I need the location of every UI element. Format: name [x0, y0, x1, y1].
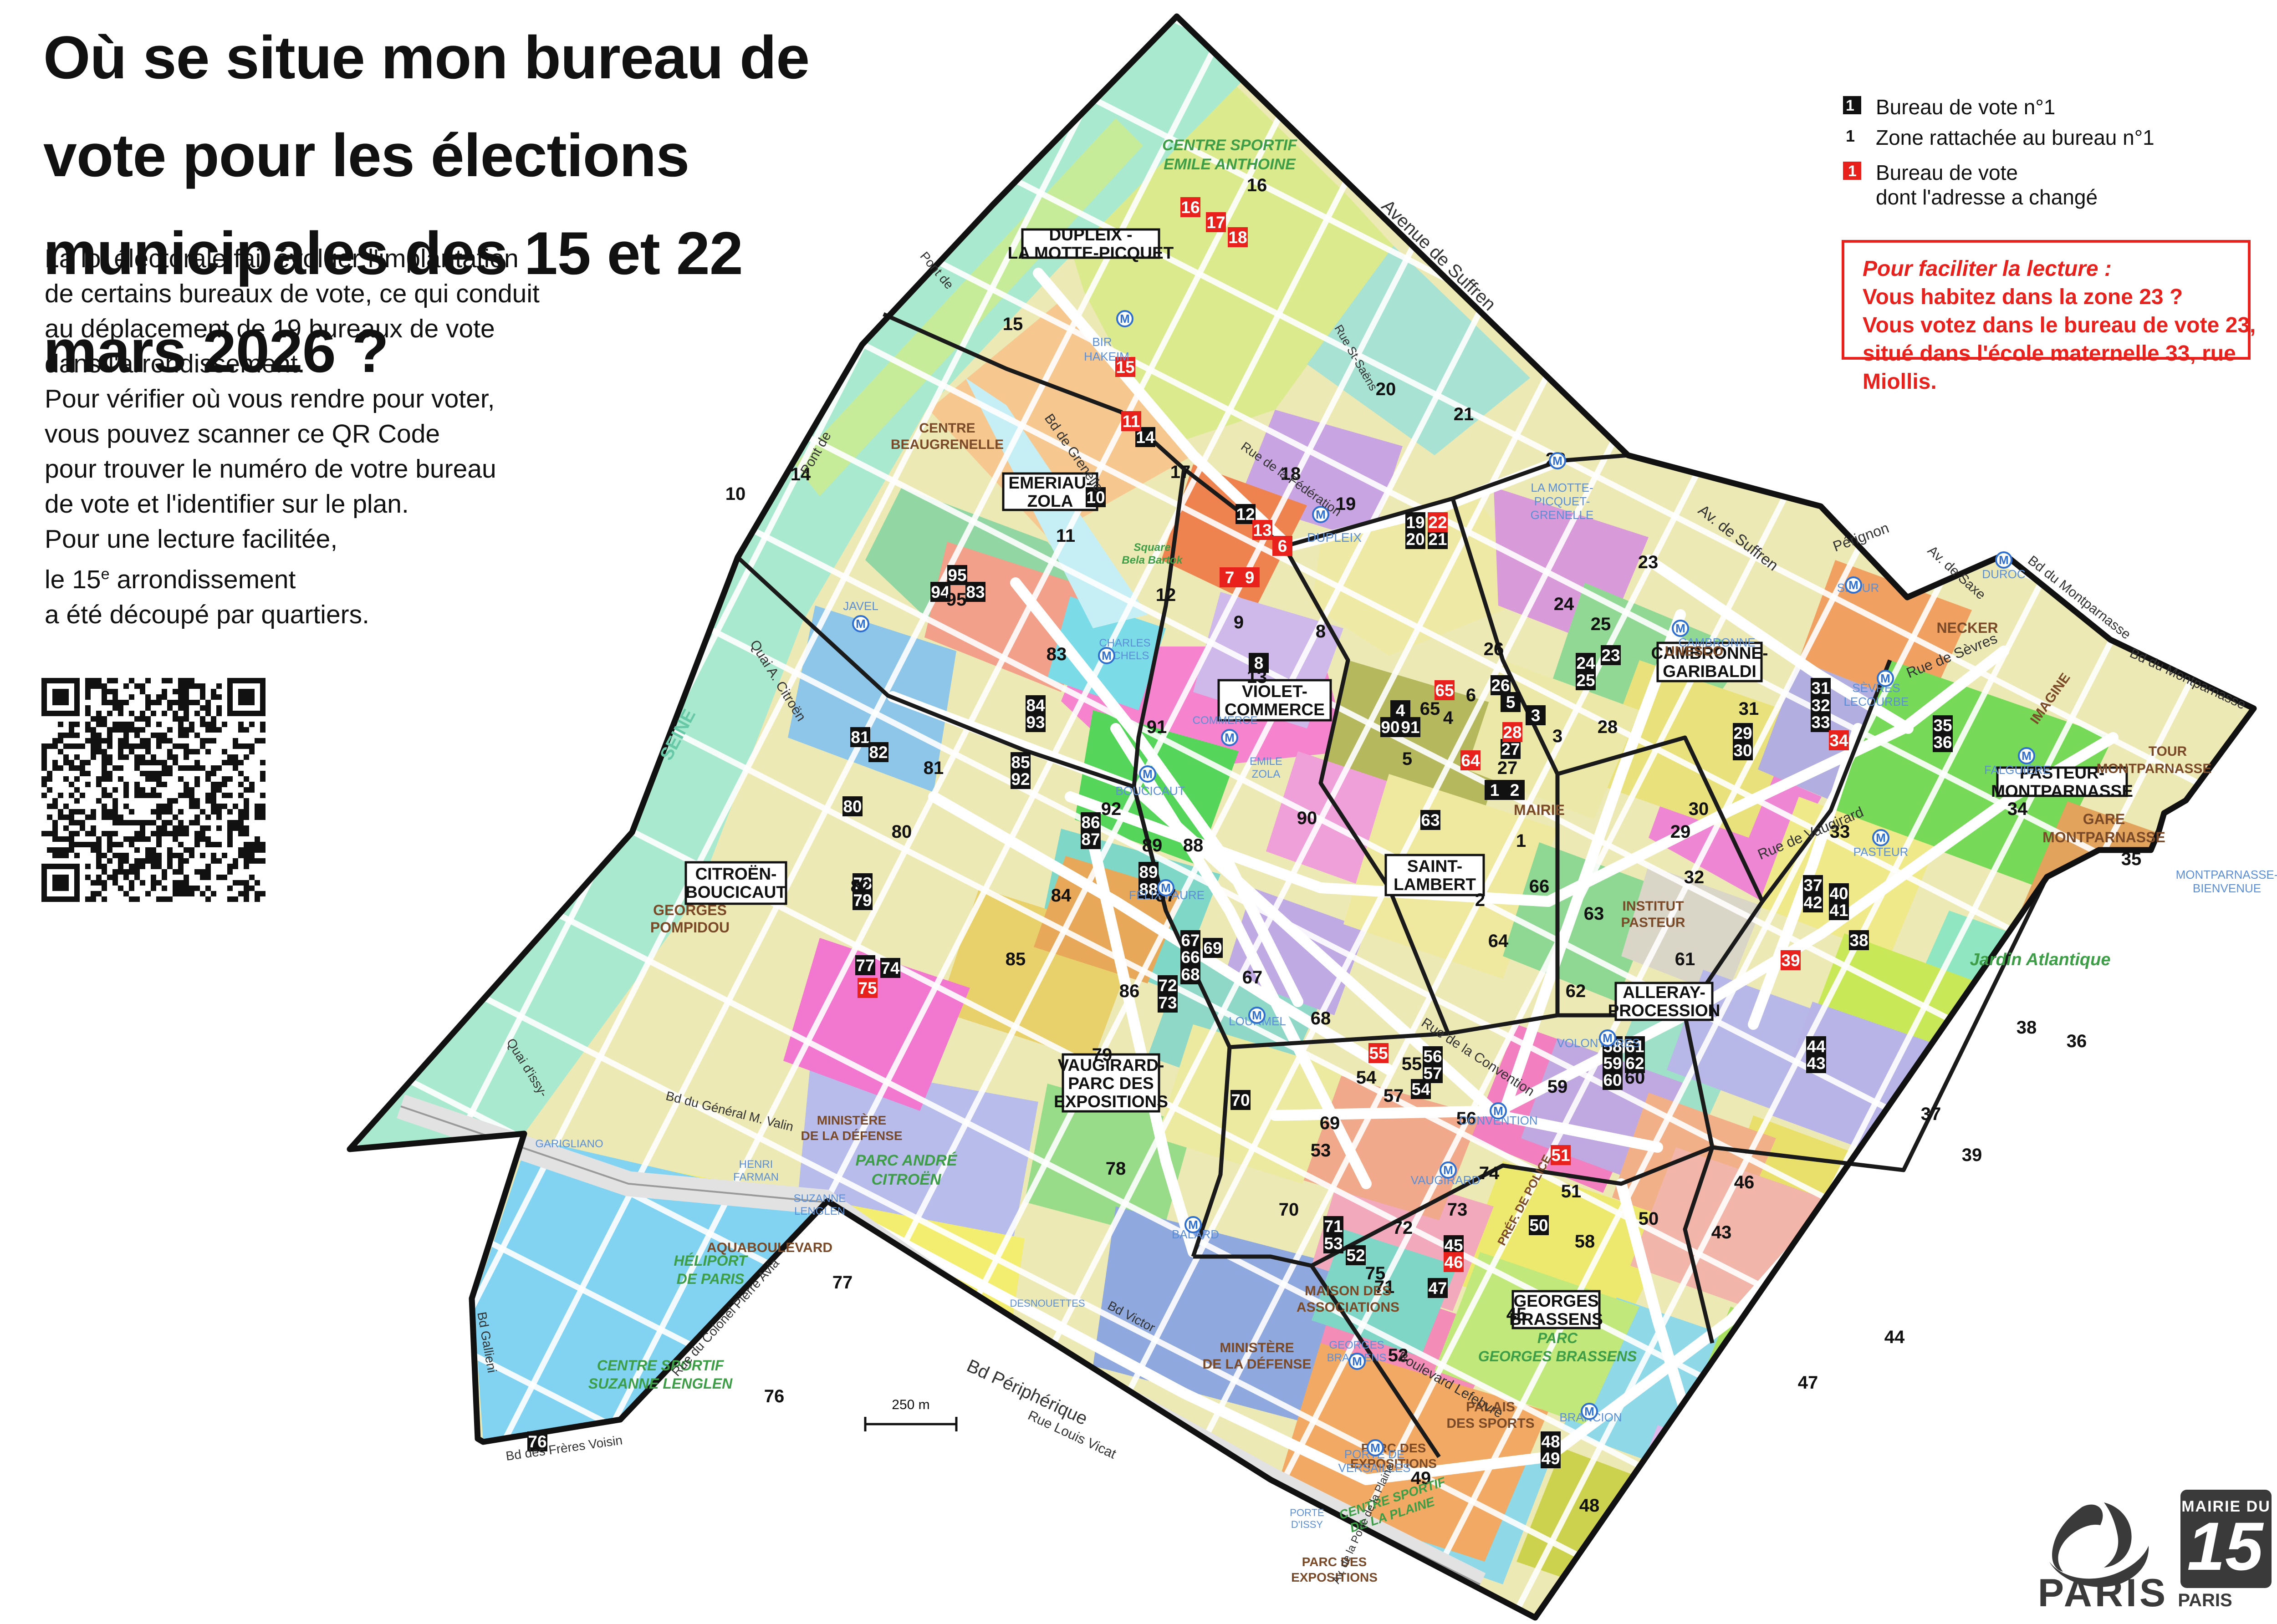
svg-text:43: 43: [1807, 1054, 1825, 1073]
svg-text:43: 43: [1711, 1222, 1732, 1242]
svg-text:PROCESSION: PROCESSION: [1608, 1001, 1721, 1020]
svg-text:DE LA DÉFENSE: DE LA DÉFENSE: [1203, 1356, 1312, 1372]
svg-text:DUROC: DUROC: [1982, 567, 2025, 581]
svg-text:85: 85: [1006, 949, 1026, 969]
svg-text:CAMBRONNE: CAMBRONNE: [1678, 636, 1755, 649]
svg-text:75: 75: [858, 979, 877, 998]
svg-text:VOLONTAIRES: VOLONTAIRES: [1557, 1036, 1640, 1050]
svg-text:33: 33: [1811, 713, 1830, 732]
svg-text:70: 70: [1279, 1200, 1299, 1220]
svg-text:52: 52: [1346, 1246, 1365, 1265]
svg-text:91: 91: [1401, 718, 1419, 737]
svg-text:79: 79: [1092, 1045, 1113, 1065]
svg-text:DE PARIS: DE PARIS: [677, 1271, 745, 1287]
svg-text:BIR: BIR: [1092, 335, 1112, 349]
svg-text:DE LA DÉFENSE: DE LA DÉFENSE: [801, 1129, 903, 1143]
svg-text:77: 77: [832, 1273, 853, 1293]
svg-text:63: 63: [1584, 904, 1604, 924]
svg-text:23: 23: [1601, 646, 1620, 665]
svg-text:M: M: [2022, 749, 2032, 763]
svg-text:12: 12: [1156, 585, 1176, 605]
svg-text:22: 22: [1428, 513, 1447, 532]
svg-text:86: 86: [1119, 981, 1140, 1001]
svg-text:PARC ANDRÉ: PARC ANDRÉ: [856, 1152, 958, 1169]
svg-text:73: 73: [1447, 1200, 1468, 1220]
svg-text:34: 34: [2007, 799, 2028, 819]
svg-text:46: 46: [1444, 1253, 1463, 1272]
svg-text:ZOLA: ZOLA: [1027, 492, 1073, 510]
svg-text:5: 5: [1402, 749, 1412, 769]
svg-text:17: 17: [1170, 462, 1191, 482]
svg-text:26: 26: [1491, 676, 1510, 695]
svg-text:CITROËN: CITROËN: [872, 1171, 942, 1188]
svg-text:GRENELLE: GRENELLE: [1531, 508, 1594, 522]
svg-text:MINISTÈRE: MINISTÈRE: [817, 1113, 886, 1127]
svg-text:6: 6: [1466, 685, 1476, 705]
svg-text:66: 66: [1181, 948, 1200, 967]
svg-text:69: 69: [1320, 1113, 1340, 1133]
svg-text:45: 45: [1506, 1304, 1527, 1324]
svg-text:24: 24: [1554, 594, 1574, 614]
svg-text:86: 86: [1081, 813, 1100, 832]
svg-text:1: 1: [1490, 781, 1500, 799]
svg-text:70: 70: [1231, 1091, 1250, 1110]
svg-text:MINISTÈRE: MINISTÈRE: [1220, 1340, 1294, 1355]
svg-text:SUZANNE: SUZANNE: [794, 1192, 846, 1205]
svg-text:75: 75: [1365, 1263, 1386, 1283]
svg-text:28: 28: [1598, 717, 1618, 737]
svg-text:11: 11: [1056, 526, 1075, 546]
svg-text:38: 38: [2017, 1018, 2037, 1038]
svg-text:30: 30: [1733, 741, 1752, 760]
svg-text:LAMBERT: LAMBERT: [1394, 875, 1476, 894]
svg-text:250 m: 250 m: [892, 1397, 929, 1412]
svg-text:4: 4: [1443, 708, 1454, 728]
svg-text:M: M: [1999, 553, 2009, 567]
svg-text:60: 60: [1625, 1068, 1645, 1088]
svg-text:M: M: [1584, 1405, 1594, 1418]
svg-text:D'ISSY: D'ISSY: [1291, 1519, 1323, 1530]
svg-text:92: 92: [1101, 799, 1122, 819]
svg-text:M: M: [1252, 1008, 1262, 1022]
svg-text:55: 55: [1369, 1044, 1388, 1063]
svg-text:M: M: [1102, 649, 1112, 662]
svg-text:DUPLEIX: DUPLEIX: [1307, 530, 1362, 545]
svg-text:45: 45: [1444, 1236, 1463, 1255]
svg-text:M: M: [1225, 731, 1235, 744]
svg-text:3: 3: [1552, 726, 1562, 746]
svg-text:35: 35: [1933, 716, 1952, 735]
svg-text:64: 64: [1461, 751, 1480, 770]
svg-text:39: 39: [1781, 951, 1800, 970]
svg-text:8: 8: [1316, 621, 1326, 641]
svg-text:31: 31: [1811, 679, 1830, 697]
svg-text:GEORGES: GEORGES: [1329, 1339, 1384, 1351]
svg-text:LECOURBE: LECOURBE: [1843, 695, 1909, 708]
svg-text:24: 24: [1576, 654, 1595, 672]
svg-text:60: 60: [1603, 1071, 1622, 1089]
svg-text:54: 54: [1411, 1080, 1430, 1099]
svg-text:M: M: [1603, 1031, 1613, 1045]
svg-text:LENGLEN: LENGLEN: [794, 1205, 845, 1217]
svg-text:Jardin Atlantique: Jardin Atlantique: [1970, 950, 2111, 969]
svg-text:73: 73: [1158, 993, 1177, 1012]
svg-text:65: 65: [1420, 699, 1440, 719]
svg-text:37: 37: [1803, 876, 1822, 895]
svg-text:41: 41: [1829, 901, 1848, 920]
svg-text:23: 23: [1638, 552, 1659, 572]
svg-text:68: 68: [1181, 965, 1200, 984]
svg-text:31: 31: [1739, 699, 1759, 719]
svg-text:SAINT-: SAINT-: [1407, 857, 1462, 876]
svg-text:2: 2: [1510, 781, 1520, 799]
svg-text:62: 62: [1566, 981, 1586, 1001]
svg-text:DUPLEIX -: DUPLEIX -: [1049, 225, 1133, 244]
svg-text:15: 15: [1003, 314, 1023, 334]
svg-text:48: 48: [1579, 1496, 1600, 1516]
svg-text:PARC DES: PARC DES: [1068, 1074, 1154, 1093]
svg-text:76: 76: [764, 1386, 785, 1406]
svg-text:LA MOTTE-: LA MOTTE-: [1531, 481, 1593, 494]
svg-text:93: 93: [1026, 713, 1045, 732]
svg-text:89: 89: [1139, 863, 1158, 881]
svg-text:HAKEIM: HAKEIM: [1084, 350, 1129, 363]
svg-text:37: 37: [1921, 1104, 1941, 1124]
svg-text:15: 15: [2187, 1508, 2264, 1584]
svg-text:29: 29: [1670, 822, 1691, 842]
svg-text:46: 46: [1734, 1172, 1755, 1192]
svg-text:44: 44: [1884, 1327, 1905, 1347]
svg-text:67: 67: [1181, 931, 1200, 950]
svg-text:M: M: [1370, 1441, 1380, 1455]
svg-text:PASTEUR: PASTEUR: [1853, 845, 1909, 859]
svg-text:BOUCICAUT: BOUCICAUT: [1115, 784, 1185, 798]
svg-text:35: 35: [2121, 849, 2142, 869]
svg-text:EXPOSITIONS: EXPOSITIONS: [1054, 1092, 1168, 1111]
svg-text:47: 47: [1798, 1373, 1818, 1393]
svg-text:92: 92: [1011, 770, 1030, 789]
svg-text:20: 20: [1406, 530, 1424, 549]
svg-text:FARMAN: FARMAN: [733, 1171, 779, 1183]
svg-text:65: 65: [1435, 681, 1454, 700]
svg-text:42: 42: [1803, 893, 1822, 912]
svg-text:85: 85: [1011, 753, 1030, 772]
svg-text:39: 39: [1962, 1145, 1982, 1165]
svg-text:18: 18: [1228, 228, 1247, 247]
svg-text:51: 51: [1561, 1181, 1582, 1201]
svg-text:53: 53: [1311, 1140, 1331, 1161]
svg-text:M: M: [1876, 831, 1886, 845]
svg-text:CENTRE SPORTIF: CENTRE SPORTIF: [597, 1357, 725, 1374]
svg-text:M: M: [1443, 1163, 1453, 1177]
svg-text:36: 36: [2067, 1031, 2087, 1051]
svg-text:90: 90: [1381, 718, 1399, 737]
svg-text:57: 57: [1384, 1086, 1404, 1106]
svg-text:INSTITUT: INSTITUT: [1623, 899, 1684, 914]
svg-text:ALLERAY-: ALLERAY-: [1623, 983, 1705, 1002]
svg-text:83: 83: [1047, 644, 1067, 664]
svg-text:78: 78: [1106, 1159, 1126, 1179]
svg-text:4: 4: [1396, 701, 1405, 720]
svg-text:Bela Bartok: Bela Bartok: [1122, 554, 1183, 566]
svg-text:38: 38: [1849, 931, 1868, 950]
svg-text:40: 40: [1829, 884, 1848, 903]
svg-text:ASSOCIATIONS: ASSOCIATIONS: [1297, 1300, 1399, 1315]
svg-text:M: M: [1880, 672, 1890, 685]
svg-text:FALGUIÈRE: FALGUIÈRE: [1984, 763, 2051, 777]
svg-text:59: 59: [1547, 1077, 1568, 1097]
svg-text:27: 27: [1501, 740, 1520, 759]
svg-text:88: 88: [1183, 835, 1204, 855]
svg-text:CENTRE SPORTIF: CENTRE SPORTIF: [1162, 137, 1297, 154]
svg-text:EMILE: EMILE: [1250, 755, 1282, 768]
svg-text:1: 1: [1516, 831, 1526, 851]
svg-text:77: 77: [856, 956, 874, 975]
svg-text:13: 13: [1253, 521, 1271, 540]
svg-text:83: 83: [966, 583, 985, 601]
svg-text:HENRI: HENRI: [739, 1158, 773, 1171]
svg-text:13: 13: [1247, 667, 1267, 687]
svg-text:PARC: PARC: [1537, 1330, 1578, 1346]
svg-text:PASTEUR: PASTEUR: [1621, 915, 1685, 930]
svg-text:16: 16: [1247, 175, 1267, 195]
svg-text:49: 49: [1541, 1449, 1560, 1468]
svg-text:VERSAILLES: VERSAILLES: [1338, 1461, 1411, 1475]
svg-text:87: 87: [1081, 830, 1100, 849]
svg-text:EMERIAU-: EMERIAU-: [1009, 473, 1092, 492]
svg-text:GEORGES: GEORGES: [653, 902, 727, 918]
svg-text:12: 12: [1236, 505, 1255, 524]
svg-text:M: M: [1143, 767, 1153, 781]
svg-text:58: 58: [1575, 1232, 1595, 1252]
svg-text:36: 36: [1933, 733, 1952, 752]
svg-text:BOUCICAUT: BOUCICAUT: [685, 883, 786, 901]
svg-text:6: 6: [1278, 537, 1287, 555]
svg-text:16: 16: [1181, 198, 1200, 217]
svg-text:25: 25: [1576, 671, 1595, 690]
svg-text:11: 11: [1122, 412, 1140, 431]
svg-text:GARIGLIANO: GARIGLIANO: [535, 1138, 603, 1150]
svg-text:68: 68: [1311, 1008, 1331, 1028]
svg-text:72: 72: [1393, 1218, 1413, 1238]
svg-text:2: 2: [1475, 890, 1485, 910]
svg-text:84: 84: [1051, 886, 1072, 906]
svg-text:CITROËN-: CITROËN-: [695, 865, 777, 883]
svg-text:72: 72: [1158, 976, 1177, 995]
svg-text:PARC DES: PARC DES: [1302, 1555, 1367, 1569]
svg-text:81: 81: [851, 728, 869, 747]
svg-text:89: 89: [1142, 835, 1163, 855]
svg-text:25: 25: [1591, 614, 1611, 634]
svg-text:95: 95: [948, 566, 966, 585]
svg-text:COMMERCE: COMMERCE: [1193, 714, 1258, 727]
svg-text:74: 74: [1479, 1163, 1500, 1183]
svg-text:9: 9: [1245, 568, 1255, 587]
svg-text:GEORGES BRASSENS: GEORGES BRASSENS: [1478, 1348, 1637, 1364]
svg-text:M: M: [1352, 1354, 1362, 1368]
svg-text:EMILE ANTHOINE: EMILE ANTHOINE: [1164, 156, 1296, 173]
svg-text:69: 69: [1203, 939, 1222, 957]
svg-text:M: M: [1120, 312, 1130, 326]
svg-text:POMPIDOU: POMPIDOU: [650, 919, 730, 936]
svg-text:28: 28: [1503, 723, 1521, 742]
svg-text:MONTPARNASSE: MONTPARNASSE: [1991, 782, 2133, 800]
svg-text:LA MOTTE-PICQUET: LA MOTTE-PICQUET: [1008, 244, 1174, 262]
svg-text:ZOLA: ZOLA: [1252, 768, 1281, 780]
svg-text:91: 91: [1147, 717, 1167, 737]
svg-text:BEAUGRENELLE: BEAUGRENELLE: [891, 437, 1004, 452]
svg-text:48: 48: [1541, 1432, 1560, 1451]
svg-text:SUZANNE LENGLEN: SUZANNE LENGLEN: [588, 1375, 733, 1392]
svg-text:5: 5: [1506, 693, 1516, 712]
svg-text:MONTPARNASSE: MONTPARNASSE: [2042, 829, 2165, 845]
svg-text:32: 32: [1811, 696, 1830, 715]
svg-text:DESNOUETTES: DESNOUETTES: [1010, 1298, 1085, 1309]
svg-text:PICQUET-: PICQUET-: [1534, 494, 1590, 508]
svg-text:MAIRIE: MAIRIE: [1514, 802, 1565, 818]
svg-text:21: 21: [1454, 404, 1474, 424]
svg-text:82: 82: [851, 876, 871, 896]
svg-text:9: 9: [1234, 612, 1244, 632]
svg-text:71: 71: [1324, 1217, 1343, 1236]
svg-text:PORTE: PORTE: [1290, 1507, 1324, 1518]
svg-text:54: 54: [1356, 1068, 1377, 1088]
svg-text:JAVEL: JAVEL: [843, 599, 878, 613]
svg-text:84: 84: [1026, 696, 1045, 715]
svg-text:AQUABOULEVARD: AQUABOULEVARD: [707, 1240, 832, 1255]
svg-text:82: 82: [869, 743, 888, 762]
svg-text:7: 7: [1225, 568, 1235, 587]
svg-text:TOUR: TOUR: [2149, 744, 2187, 759]
svg-text:Square: Square: [1133, 541, 1170, 554]
svg-text:M: M: [856, 617, 866, 631]
svg-text:90: 90: [1297, 808, 1317, 828]
svg-text:53: 53: [1324, 1234, 1343, 1253]
svg-text:17: 17: [1206, 213, 1225, 232]
svg-text:74: 74: [881, 959, 900, 977]
svg-text:32: 32: [1684, 867, 1705, 887]
svg-text:GARIBALDI: GARIBALDI: [1663, 662, 1756, 681]
svg-text:M: M: [1188, 1218, 1198, 1232]
svg-text:PARIS: PARIS: [2038, 1571, 2168, 1615]
svg-text:59: 59: [1603, 1054, 1622, 1073]
svg-text:67: 67: [1242, 967, 1263, 988]
svg-text:M: M: [1161, 881, 1171, 895]
svg-text:47: 47: [1428, 1279, 1447, 1298]
svg-text:PARIS: PARIS: [2178, 1590, 2232, 1610]
svg-text:66: 66: [1529, 876, 1550, 896]
svg-text:50: 50: [1639, 1209, 1659, 1229]
svg-text:26: 26: [1484, 639, 1504, 659]
svg-text:50: 50: [1529, 1216, 1548, 1235]
svg-text:27: 27: [1497, 758, 1518, 778]
svg-text:M: M: [1848, 578, 1858, 592]
svg-text:30: 30: [1689, 799, 1709, 819]
svg-text:M: M: [1493, 1104, 1503, 1118]
svg-text:95: 95: [946, 590, 967, 610]
svg-text:21: 21: [1428, 530, 1447, 549]
svg-text:19: 19: [1406, 513, 1424, 532]
svg-text:MONTPARNASSE-: MONTPARNASSE-: [2176, 868, 2277, 881]
svg-text:MAISON DES: MAISON DES: [1305, 1283, 1391, 1298]
svg-text:81: 81: [924, 758, 944, 778]
svg-text:CENTRE: CENTRE: [919, 421, 975, 436]
svg-text:56: 56: [1423, 1047, 1442, 1066]
svg-text:29: 29: [1733, 724, 1752, 743]
svg-text:SÈVRES: SÈVRES: [1852, 681, 1900, 695]
svg-text:BIENVENUE: BIENVENUE: [2193, 881, 2261, 895]
svg-text:10: 10: [725, 484, 746, 504]
svg-text:34: 34: [1829, 731, 1848, 750]
svg-text:3: 3: [1531, 706, 1541, 725]
svg-text:M: M: [1675, 621, 1685, 635]
svg-text:80: 80: [843, 797, 862, 816]
svg-text:GARE: GARE: [2083, 811, 2125, 827]
svg-text:80: 80: [892, 822, 912, 842]
svg-text:MONTPARNASSE: MONTPARNASSE: [2097, 761, 2212, 776]
svg-text:44: 44: [1807, 1037, 1826, 1056]
svg-text:55: 55: [1402, 1054, 1422, 1074]
svg-text:61: 61: [1675, 949, 1695, 969]
svg-text:51: 51: [1551, 1146, 1570, 1165]
svg-text:64: 64: [1488, 931, 1509, 951]
svg-text:M: M: [1552, 454, 1562, 468]
svg-text:DES SPORTS: DES SPORTS: [1446, 1416, 1534, 1431]
svg-text:63: 63: [1421, 811, 1440, 830]
